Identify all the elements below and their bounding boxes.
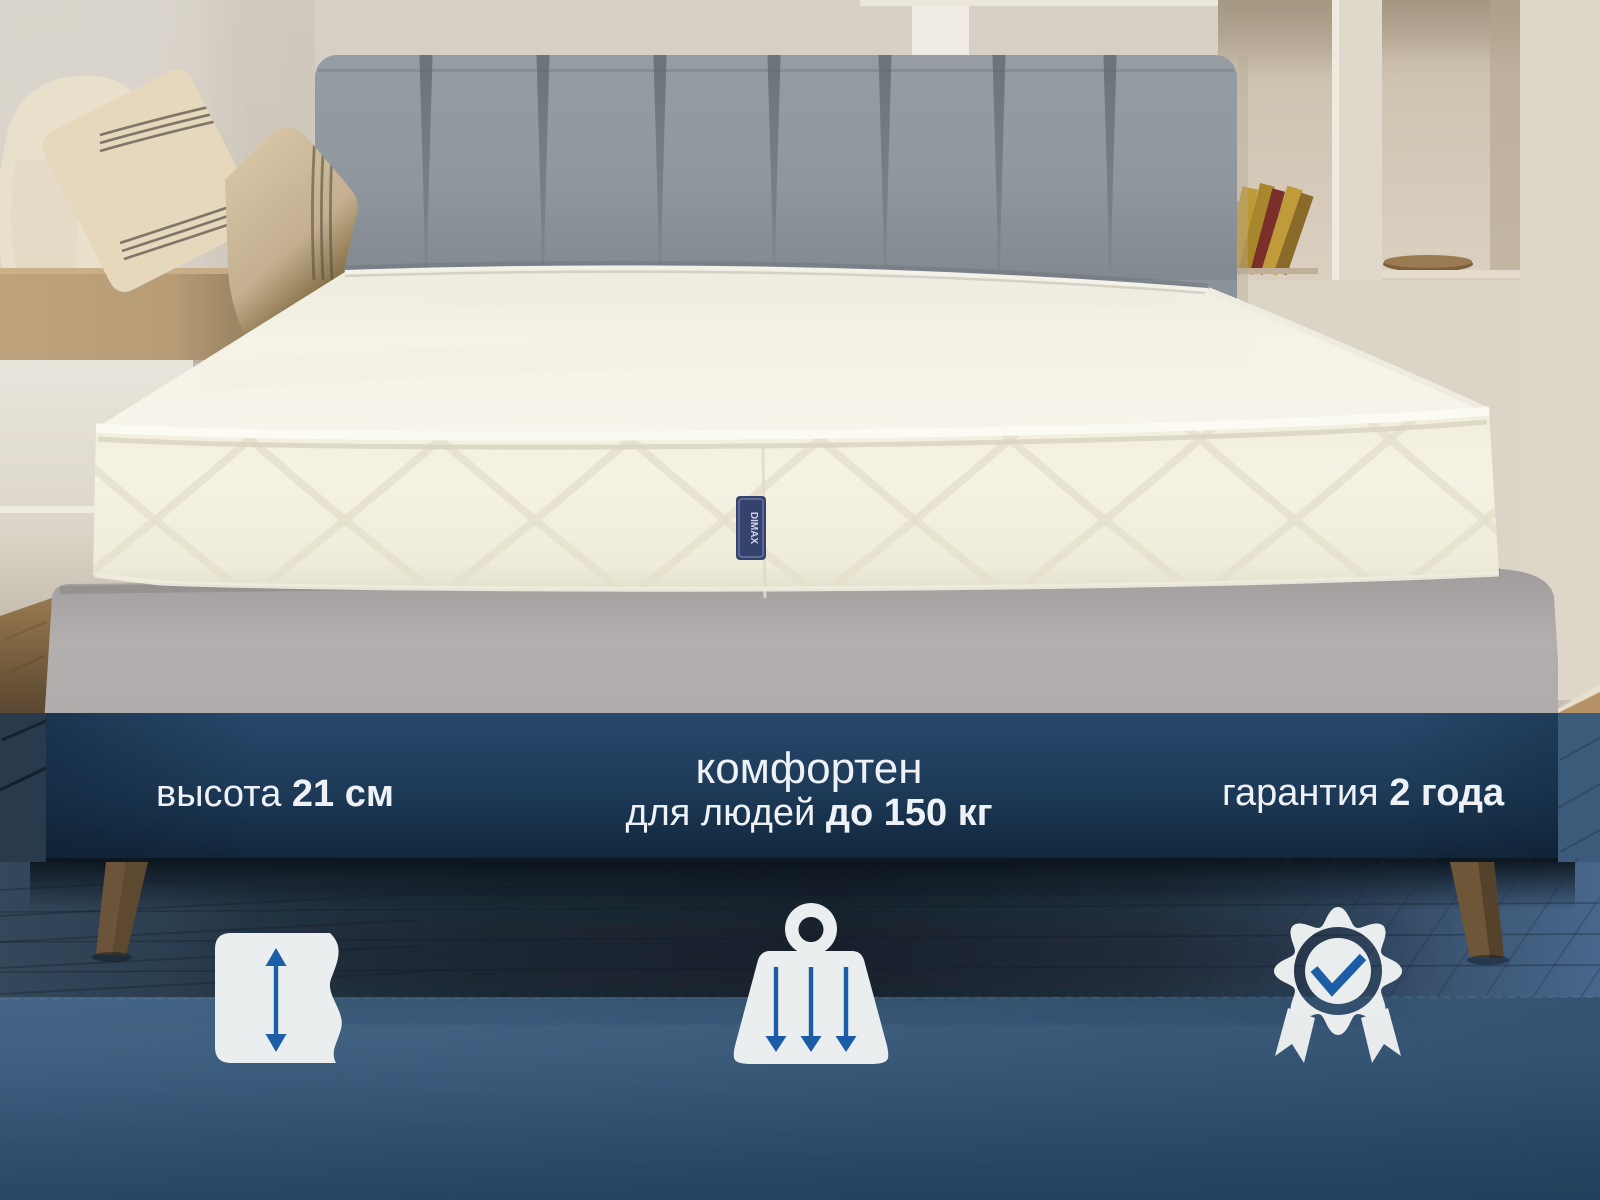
svg-text:DIMAX: DIMAX (748, 512, 759, 545)
